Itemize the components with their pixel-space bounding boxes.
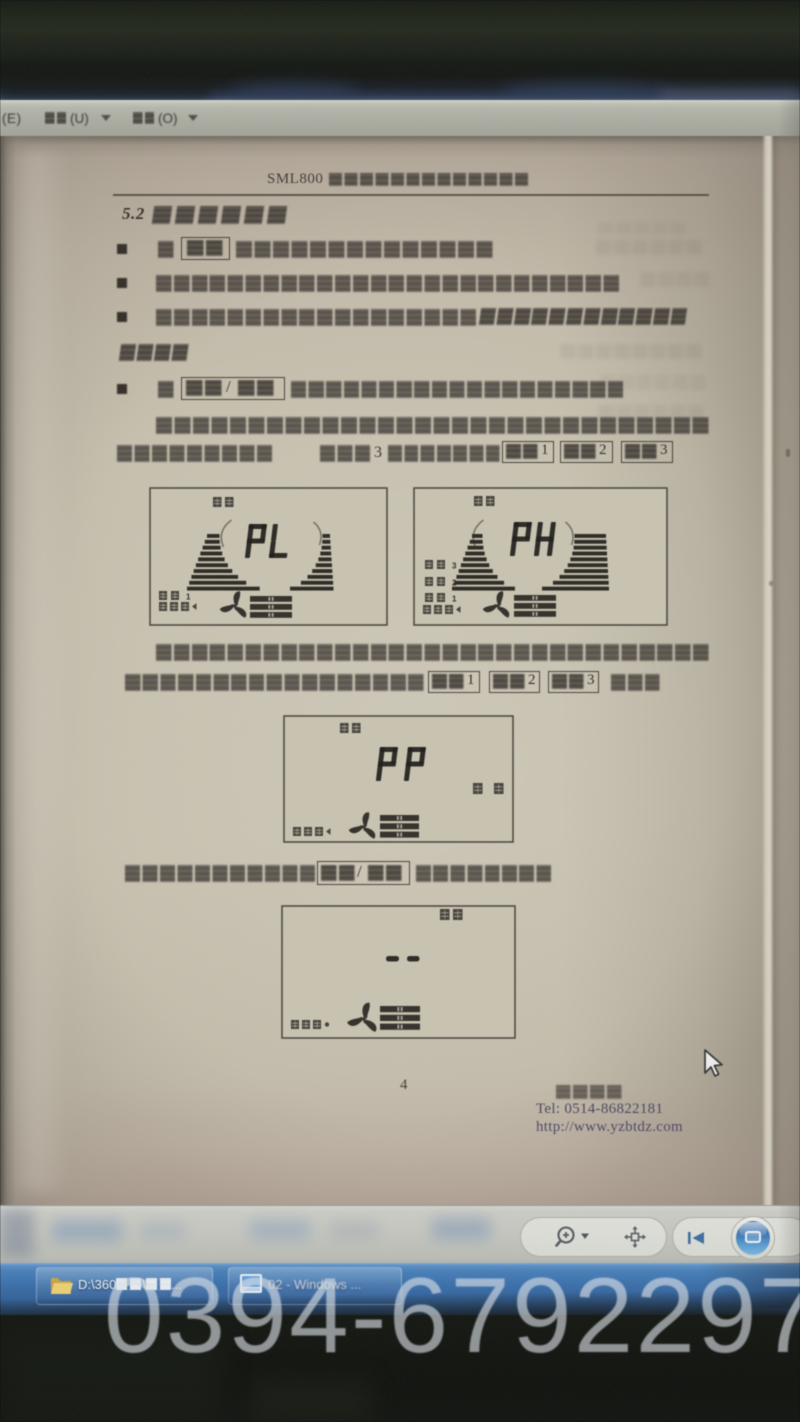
svg-text:1: 1 — [452, 595, 457, 604]
svg-text:1: 1 — [186, 593, 191, 602]
svg-text:3: 3 — [452, 562, 457, 571]
svg-text:2: 2 — [452, 579, 457, 588]
